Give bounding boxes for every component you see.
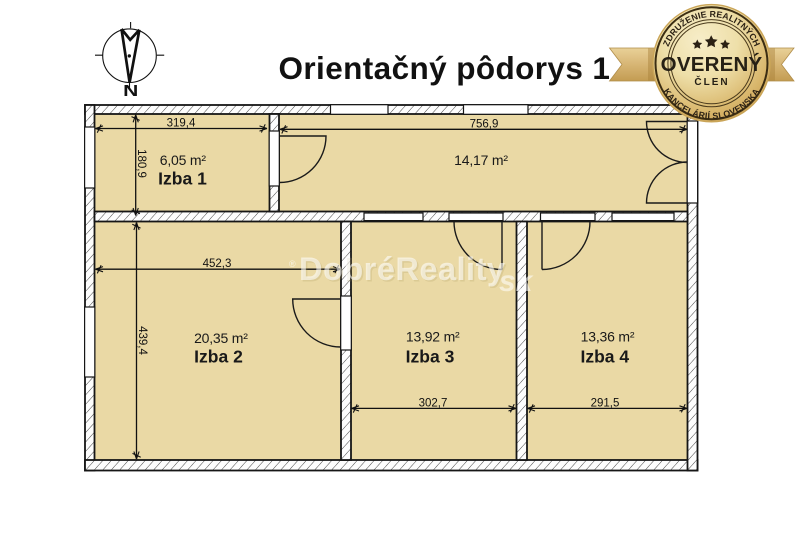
- svg-text:Orientačný pôdorys 1: Orientačný pôdorys 1: [279, 50, 611, 86]
- svg-text:Izba 2: Izba 2: [194, 347, 243, 367]
- svg-text:®: ®: [289, 259, 296, 269]
- svg-text:DobréReality: DobréReality: [299, 251, 505, 287]
- svg-text:20,35 m²: 20,35 m²: [194, 330, 248, 346]
- svg-text:439,4: 439,4: [136, 326, 148, 355]
- svg-text:14,17 m²: 14,17 m²: [454, 152, 508, 168]
- svg-text:Izba 3: Izba 3: [406, 347, 455, 367]
- svg-text:13,92 m²: 13,92 m²: [406, 329, 460, 345]
- svg-text:291,5: 291,5: [591, 397, 620, 409]
- svg-text:Izba 1: Izba 1: [158, 168, 207, 188]
- svg-text:N: N: [123, 83, 138, 100]
- svg-text:13,36 m²: 13,36 m²: [581, 329, 635, 345]
- svg-text:319,4: 319,4: [167, 117, 196, 129]
- svg-text:Izba 4: Izba 4: [580, 347, 629, 367]
- svg-text:180,9: 180,9: [135, 149, 147, 178]
- svg-text:ČLEN: ČLEN: [694, 75, 729, 88]
- svg-text:6,05 m²: 6,05 m²: [160, 152, 207, 168]
- svg-text:756,9: 756,9: [470, 118, 499, 130]
- svg-text:302,7: 302,7: [419, 397, 448, 409]
- svg-text:OVERENÝ: OVERENÝ: [661, 52, 763, 76]
- svg-text:452,3: 452,3: [203, 258, 232, 270]
- svg-text:sk: sk: [499, 265, 534, 298]
